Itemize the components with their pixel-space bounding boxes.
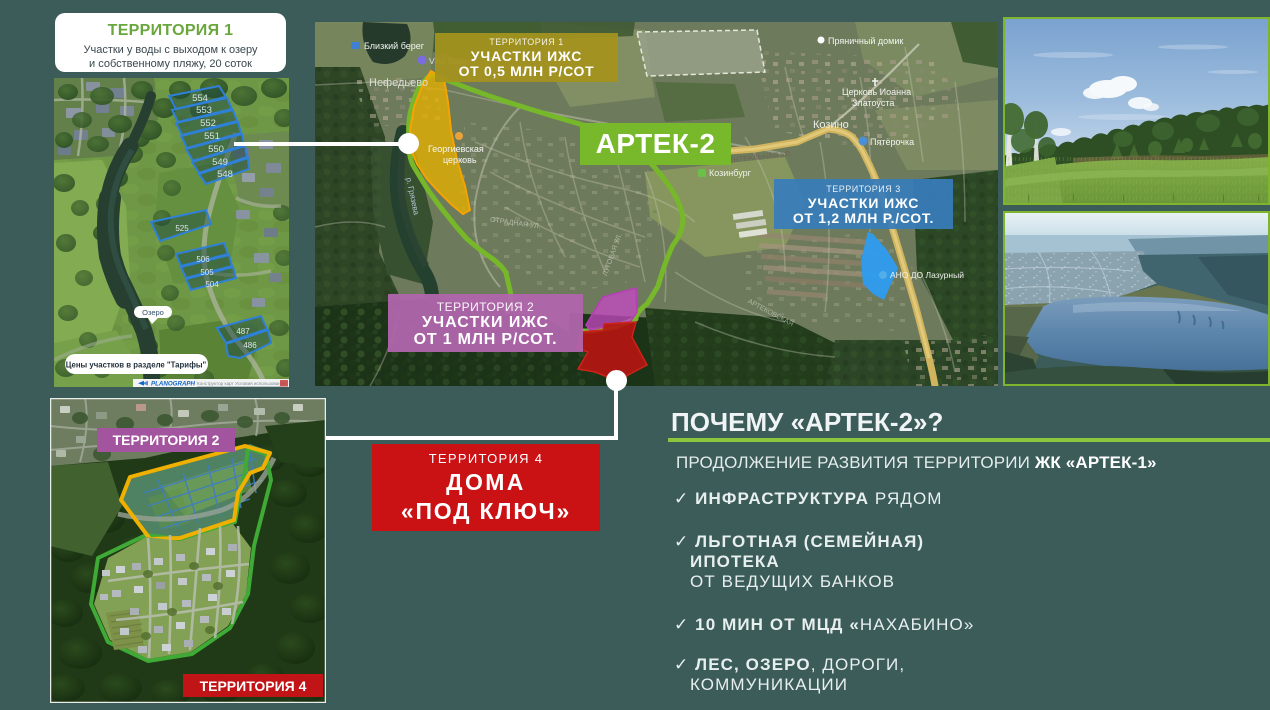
svg-text:PLANOGRAPH: PLANOGRAPH	[151, 381, 196, 388]
svg-text:548: 548	[217, 169, 233, 180]
svg-text:487: 487	[236, 327, 250, 336]
svg-text:Озеро: Озеро	[142, 308, 164, 317]
svg-text:Козинбург: Козинбург	[709, 168, 752, 178]
svg-text:АНО ДО Лазурный: АНО ДО Лазурный	[890, 270, 964, 280]
svg-text:525: 525	[175, 224, 189, 233]
svg-text:552: 552	[200, 118, 216, 129]
svg-text:486: 486	[243, 341, 257, 350]
svg-text:Златоуста: Златоуста	[852, 98, 894, 108]
svg-text:Цены участков в разделе "Тариф: Цены участков в разделе "Тарифы"	[66, 361, 207, 370]
svg-text:506: 506	[196, 255, 210, 264]
svg-text:ТЕРРИТОРИЯ 4: ТЕРРИТОРИЯ 4	[200, 678, 307, 694]
svg-text:Георгиевская: Георгиевская	[428, 144, 484, 154]
svg-text:Пряничный домик: Пряничный домик	[828, 36, 903, 46]
svg-text:ТЕРРИТОРИЯ 2: ТЕРРИТОРИЯ 2	[113, 432, 220, 448]
svg-text:Пятёрочка: Пятёрочка	[870, 137, 914, 147]
svg-text:504: 504	[205, 280, 219, 289]
svg-text:549: 549	[212, 157, 228, 168]
svg-text:505: 505	[200, 268, 214, 277]
svg-text:Козино: Козино	[813, 119, 849, 131]
svg-text:551: 551	[204, 131, 220, 142]
svg-text:церковь: церковь	[443, 155, 477, 165]
svg-text:553: 553	[196, 105, 212, 116]
svg-text:554: 554	[192, 93, 208, 104]
svg-text:Церковь Иоанна: Церковь Иоанна	[842, 87, 911, 97]
svg-text:Конструктор карт Условия испо: Конструктор карт Условия использования	[197, 381, 286, 386]
svg-text:Нефедьево: Нефедьево	[369, 77, 428, 89]
svg-text:Близкий берег: Близкий берег	[364, 41, 425, 51]
svg-text:550: 550	[208, 144, 224, 155]
